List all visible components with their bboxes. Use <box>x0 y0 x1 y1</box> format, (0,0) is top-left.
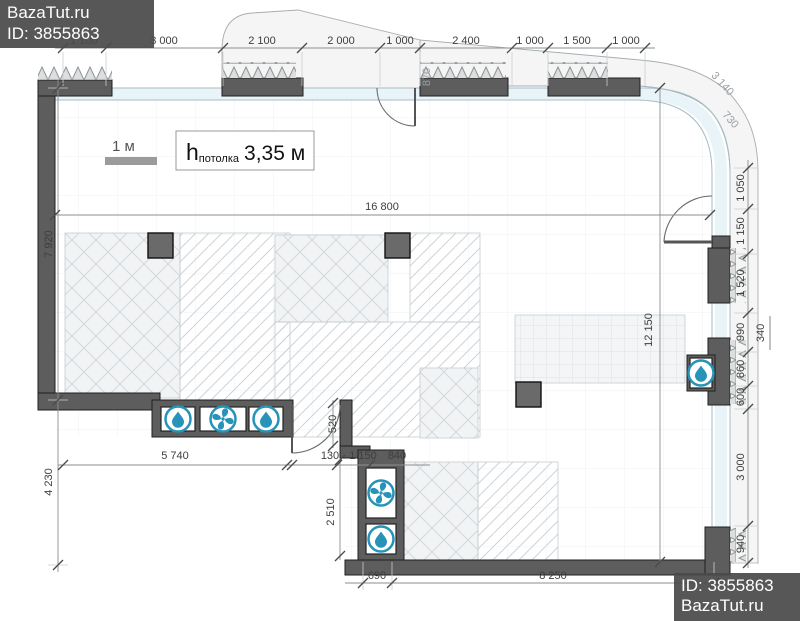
hatch-region <box>410 233 480 322</box>
dim-label: 940 <box>735 535 747 553</box>
wall-bottom-right-step <box>705 527 730 575</box>
dim-label: 2 000 <box>327 35 355 47</box>
dim-label: 1 500 <box>563 35 591 47</box>
floor-plan-drawing: 1 100 3 000 2 100 2 000 1 000 2 400 1 00… <box>0 0 800 621</box>
watermark-bottom-right: ID: 3855863 BazaTut.ru <box>674 573 800 621</box>
water-drop-icon <box>254 407 279 432</box>
dim-label: 1 000 <box>516 35 544 47</box>
dim-label: 2 400 <box>452 35 480 47</box>
watermark-top-left: BazaTut.ru ID: 3855863 <box>0 0 154 48</box>
floor-plan-page: 1 100 3 000 2 100 2 000 1 000 2 400 1 00… <box>0 0 800 621</box>
watermark-id: ID: 3855863 <box>7 24 145 45</box>
dim-label: 1 000 <box>612 35 640 47</box>
dim-label: 340 <box>755 324 767 342</box>
dim-label: 1 520 <box>735 269 747 297</box>
scale-bar-label: 1 м <box>112 138 135 155</box>
dim-label: 1 000 <box>386 35 414 47</box>
wall-door-stub-right <box>712 236 730 248</box>
dim-label: 130 <box>321 450 339 462</box>
dim-label: 2 510 <box>325 498 337 526</box>
dim-label: 600 <box>735 388 747 406</box>
water-drop-icon <box>369 527 394 552</box>
watermark-site: BazaTut.ru <box>7 3 145 24</box>
column <box>516 382 541 407</box>
hatch-region <box>395 462 478 560</box>
dim-label: 990 <box>735 323 747 341</box>
dim-label: 2 100 <box>248 35 276 47</box>
watermark-site: BazaTut.ru <box>681 596 791 617</box>
dim-label: 4 230 <box>43 468 55 496</box>
column <box>148 233 173 258</box>
hatch-region <box>275 235 388 322</box>
watermark-id: ID: 3855863 <box>681 576 791 597</box>
dim-label: 860 <box>735 360 747 378</box>
hatch-region-tiles <box>515 315 685 383</box>
dim-label: 1 150 <box>349 450 377 462</box>
dim-label: 3 000 <box>150 35 178 47</box>
dim-label: 3 000 <box>735 453 747 481</box>
hatch-region <box>478 462 558 560</box>
water-drop-icon <box>689 361 714 386</box>
dim-label: 520 <box>327 415 339 433</box>
wall-bottom <box>345 560 712 575</box>
scale-bar-rule <box>105 157 157 165</box>
dim-label-overall-height: 12 150 <box>643 313 655 347</box>
water-drop-icon <box>166 407 191 432</box>
dim-label: 840 <box>388 450 406 462</box>
dim-label: 1 050 <box>735 174 747 202</box>
dim-label: 7 920 <box>43 230 55 258</box>
dim-label: 1 150 <box>735 217 747 245</box>
parapet-top-3 <box>548 78 640 96</box>
parapet-top-1 <box>222 78 303 96</box>
ceiling-height-note: hпотолка3,35 м <box>176 131 314 170</box>
wall-pier-right-a <box>708 248 730 303</box>
dim-label: 5 740 <box>161 450 189 462</box>
fan-icon <box>369 481 394 506</box>
parapet-top-2 <box>420 78 508 96</box>
dim-label: 8 250 <box>539 570 567 582</box>
dim-label-overall-width: 16 800 <box>365 201 399 213</box>
column <box>385 233 410 258</box>
fan-icon <box>211 407 236 432</box>
dim-label: 870 <box>421 68 433 86</box>
hatch-region <box>420 368 478 438</box>
dim-label: 690 <box>368 570 386 582</box>
